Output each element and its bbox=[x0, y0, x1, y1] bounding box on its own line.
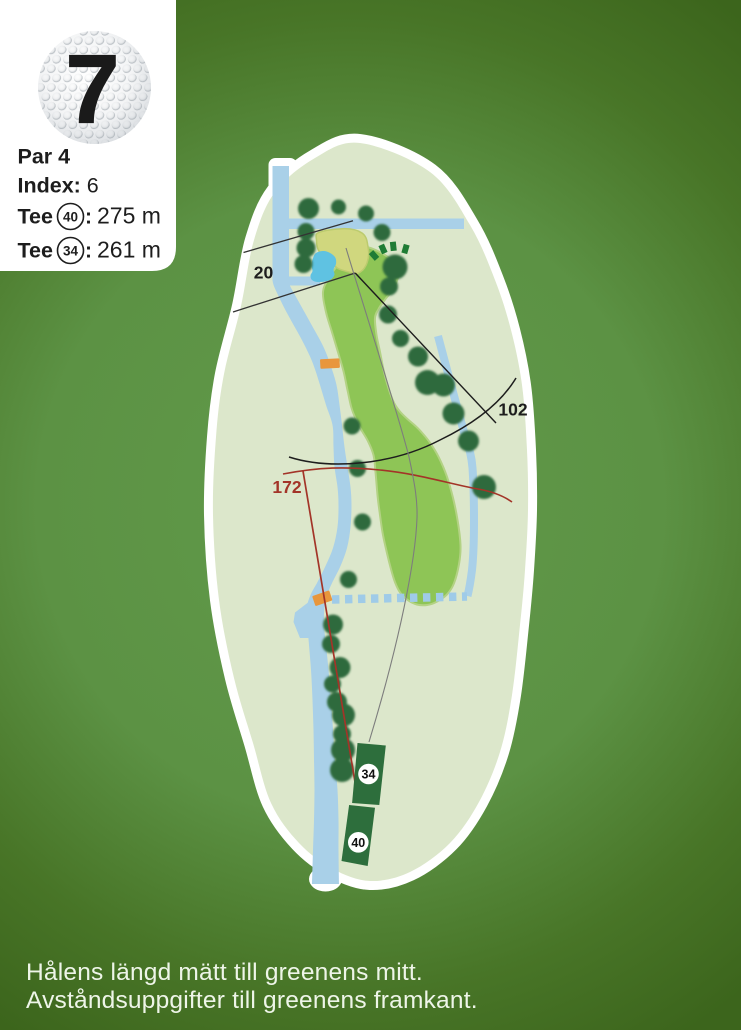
svg-text:34: 34 bbox=[362, 768, 376, 782]
svg-text:Hålens längd mätt till greenen: Hålens längd mätt till greenens mitt. bbox=[26, 959, 423, 986]
svg-text:Tee: Tee bbox=[18, 239, 53, 263]
svg-text:261 m: 261 m bbox=[97, 237, 161, 263]
svg-text:102: 102 bbox=[498, 400, 527, 420]
svg-text:40: 40 bbox=[63, 210, 78, 225]
svg-text:Index: 6: Index: 6 bbox=[18, 173, 99, 197]
svg-text:172: 172 bbox=[272, 477, 301, 497]
svg-text:275 m: 275 m bbox=[97, 203, 161, 229]
svg-text:34: 34 bbox=[63, 244, 79, 259]
svg-text:Par 4: Par 4 bbox=[18, 144, 71, 168]
svg-text:20: 20 bbox=[254, 263, 274, 283]
svg-text:Avståndsuppgifter till greenen: Avståndsuppgifter till greenens framkant… bbox=[26, 987, 478, 1014]
svg-text::: : bbox=[85, 240, 92, 263]
svg-text::: : bbox=[85, 206, 92, 229]
svg-text:7: 7 bbox=[66, 35, 120, 144]
svg-text:Tee: Tee bbox=[18, 205, 53, 229]
svg-text:40: 40 bbox=[351, 836, 365, 850]
